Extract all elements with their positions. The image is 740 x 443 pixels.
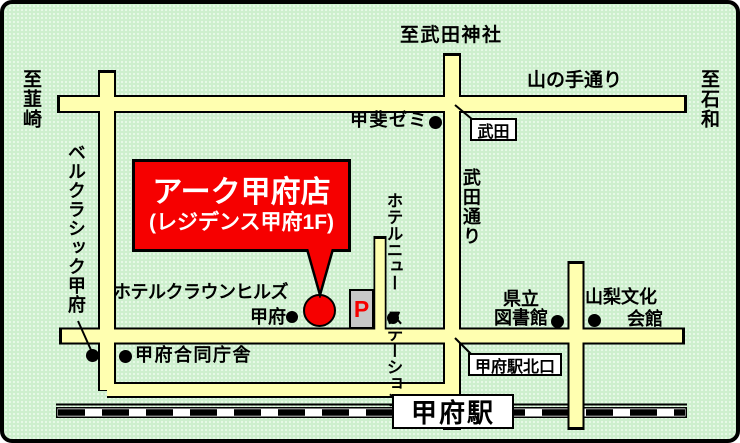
station-name-box: 甲府駅 [392, 394, 514, 429]
takeda-road-label: 武田通り [461, 168, 480, 246]
hotel-new-station-label: ホテルニュー ステーション [383, 192, 403, 408]
pref-library-label: 県立 図書館 [490, 290, 552, 328]
station-north-exit-box: 甲府駅北口 [468, 353, 562, 376]
destination-north-label: 至武田神社 [400, 26, 503, 46]
destination-east-label: 至石和 [698, 69, 718, 129]
store-floor: (レジデンス甲府1F) [149, 210, 334, 236]
kai-semi-label: 甲斐ゼミ [350, 111, 428, 130]
pref-library-line2: 図書館 [494, 308, 548, 328]
parking-icon: P [349, 289, 374, 329]
hotel-new-station-col1: ホテルニュー [384, 192, 402, 291]
hotel-crown-hills-location-dot [286, 311, 298, 323]
store-name: アーク甲府店 [152, 176, 330, 210]
takeda-stop-box: 武田 [470, 118, 517, 141]
hotel-crown-hills-label-line1: ホテルクラウンヒルズ [113, 283, 288, 302]
godo-chosha-location-dot [119, 350, 132, 363]
callout-pointer-tail [302, 249, 338, 298]
kai-semi-location-dot [429, 116, 442, 129]
yamanashi-bunka-label-line1: 山梨文化 [585, 288, 657, 307]
store-location-marker [303, 294, 336, 327]
pref-library-location-dot [551, 315, 564, 328]
destination-west-label: 至韮崎 [20, 69, 40, 129]
yamanashi-bunka-label-line2: 会館 [627, 310, 663, 329]
bel-classic-kofu-label: ベルクラシック甲府 [66, 143, 85, 314]
yamanashi-bunka-location-dot [588, 314, 601, 327]
yamanote-road-label: 山の手通り [527, 71, 622, 91]
store-callout: アーク甲府店 (レジデンス甲府1F) [132, 159, 351, 252]
hotel-new-station-location-dot [387, 312, 399, 324]
hotel-crown-hills-label-line2: 甲府 [250, 308, 286, 327]
railway-line [56, 405, 687, 418]
map-background-graphics [4, 4, 740, 443]
access-map: 至武田神社 至韮崎 至石和 山の手通り 武田通り 甲斐ゼミ 武田 ベルクラシック… [0, 0, 740, 443]
pref-library-line1: 県立 [503, 289, 539, 309]
godo-chosha-label: 甲府合同庁舎 [135, 346, 252, 365]
bel-classic-location-dot [86, 349, 99, 362]
parking-letter: P [354, 298, 369, 321]
